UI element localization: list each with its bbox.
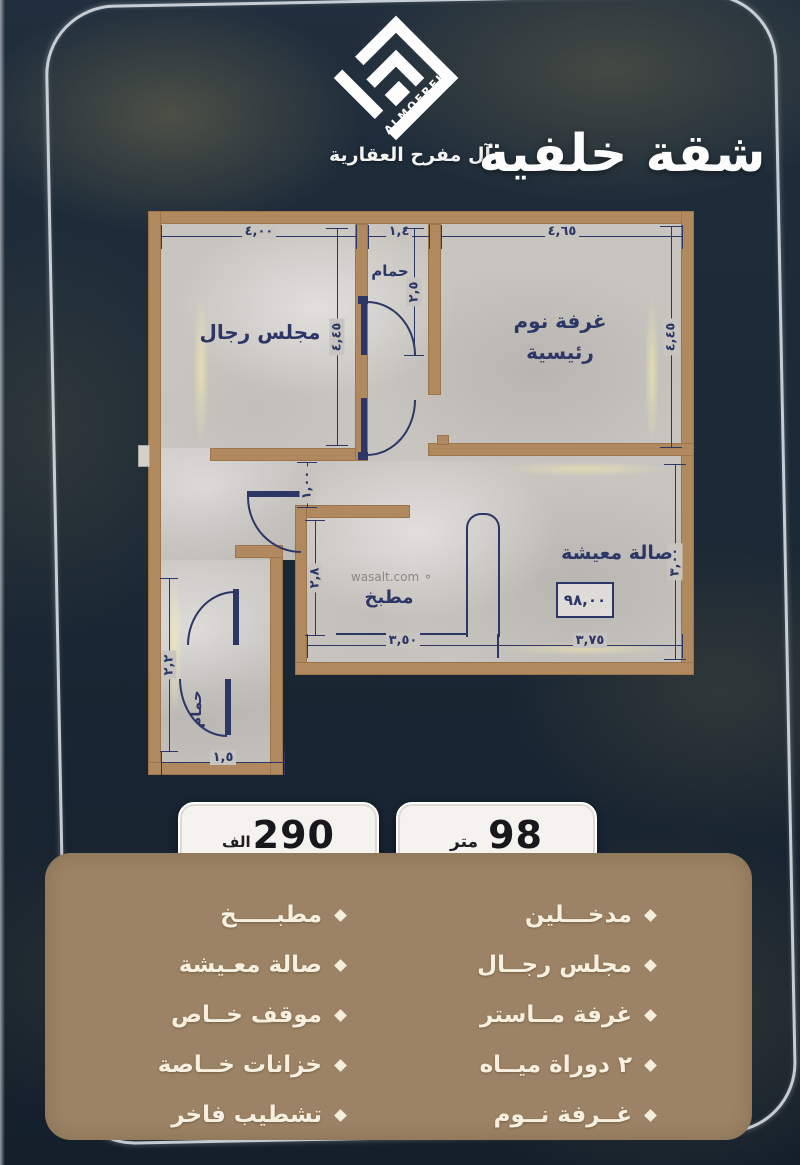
wall-jamb	[437, 435, 449, 445]
feature-item: مدخـــلين	[445, 890, 655, 940]
area-value: 98	[488, 813, 543, 857]
dimension-bath-height: ٢,٥	[404, 228, 424, 356]
diamond-bullet-icon	[644, 1059, 657, 1072]
room-label-master-bedroom: غرفة نوم رئيسية	[478, 306, 642, 368]
area-unit: متر	[450, 832, 478, 852]
wall-bedroom-bottom	[428, 443, 694, 456]
feature-label: تشطيب فاخر	[171, 1102, 322, 1128]
features-panel: مدخـــلين مجلس رجــال غرفة مــاستر ٢ دور…	[45, 853, 752, 1140]
dimension-master-height: ٤,٤٥	[660, 226, 682, 448]
feature-label: مدخـــلين	[525, 902, 632, 928]
light-glow	[645, 295, 659, 445]
room-label-master-line1: غرفة نوم	[478, 306, 642, 337]
dimension-kitchen-height: ٢,٨	[305, 520, 325, 636]
diamond-bullet-icon	[334, 1109, 347, 1122]
dimension-master-width: ٤,٦٥	[441, 225, 683, 249]
room-label-bathroom-top: حمام	[364, 262, 416, 280]
feature-item: ٢ دوراة ميــاه	[445, 1040, 655, 1090]
dimension-kitchen-width: ٣,٥٠	[307, 634, 499, 658]
feature-item: مطبـــــخ	[145, 890, 345, 940]
dimension-hall-width: ١,٠٠	[297, 462, 317, 508]
wall-bathroom-right	[270, 545, 283, 775]
watermark: wasalt.com ⚬	[342, 570, 442, 584]
kitchen-counter-outline	[466, 513, 500, 637]
features-column-right: مدخـــلين مجلس رجــال غرفة مــاستر ٢ دور…	[445, 890, 655, 1140]
feature-label: غــرفة نــوم	[494, 1102, 632, 1128]
feature-item: مجلس رجــال	[445, 940, 655, 990]
feature-label: مطبـــــخ	[220, 902, 322, 928]
feature-label: مجلس رجــال	[477, 952, 632, 978]
feature-label: ٢ دوراة ميــاه	[480, 1052, 632, 1078]
diamond-bullet-icon	[644, 909, 657, 922]
room-label-majlis: مجلس رجال	[173, 320, 347, 344]
feature-item: خزانات خــاصة	[145, 1040, 345, 1090]
room-label-living: صالة معيشة	[552, 542, 682, 564]
diamond-bullet-icon	[334, 959, 347, 972]
dimension-bathroom-height: ٢,٢	[160, 578, 178, 752]
wall-top	[148, 211, 694, 224]
feature-item: تشطيب فاخر	[145, 1090, 345, 1140]
logo-shape	[366, 58, 396, 88]
page-title: شقة خلفية	[468, 116, 776, 192]
dimension-bathroom-width: ١,٥	[161, 751, 285, 775]
diamond-bullet-icon	[334, 1009, 347, 1022]
wall-bath-bedroom	[428, 224, 441, 395]
feature-item: غــرفة نــوم	[445, 1090, 655, 1140]
feature-label: موقف خــاص	[171, 1002, 322, 1028]
room-label-kitchen: مطبخ	[350, 587, 428, 608]
area-value-box: ٩٨,٠٠	[556, 582, 614, 618]
diamond-bullet-icon	[644, 959, 657, 972]
price-unit: الف	[222, 833, 251, 851]
room-label-bathroom-bottom: حمام	[187, 681, 205, 737]
feature-item: موقف خــاص	[145, 990, 345, 1040]
room-label-master-line2: رئيسية	[478, 337, 642, 368]
light-glow	[193, 295, 209, 445]
diamond-bullet-icon	[644, 1109, 657, 1122]
watermark-mark-icon: ⚬	[423, 570, 433, 584]
feature-label: صالة معـيشة	[179, 952, 322, 978]
price-value: 290	[253, 813, 335, 857]
feature-label: غرفة مــاستر	[480, 1002, 632, 1028]
feature-label: خزانات خــاصة	[158, 1052, 322, 1078]
dimension-living-width: ٣,٧٥	[497, 634, 683, 658]
diamond-bullet-icon	[334, 909, 347, 922]
feature-item: صالة معـيشة	[145, 940, 345, 990]
left-edge-highlight	[0, 0, 5, 1165]
light-glow	[500, 462, 670, 476]
features-column-left: مطبـــــخ صالة معـيشة موقف خــاص خزانات …	[145, 890, 345, 1140]
diamond-bullet-icon	[644, 1009, 657, 1022]
wall-pilaster	[138, 445, 150, 467]
feature-item: غرفة مــاستر	[445, 990, 655, 1040]
diamond-bullet-icon	[334, 1059, 347, 1072]
wall-living-bottom	[295, 662, 694, 675]
wall-majlis-bottom	[210, 448, 356, 461]
